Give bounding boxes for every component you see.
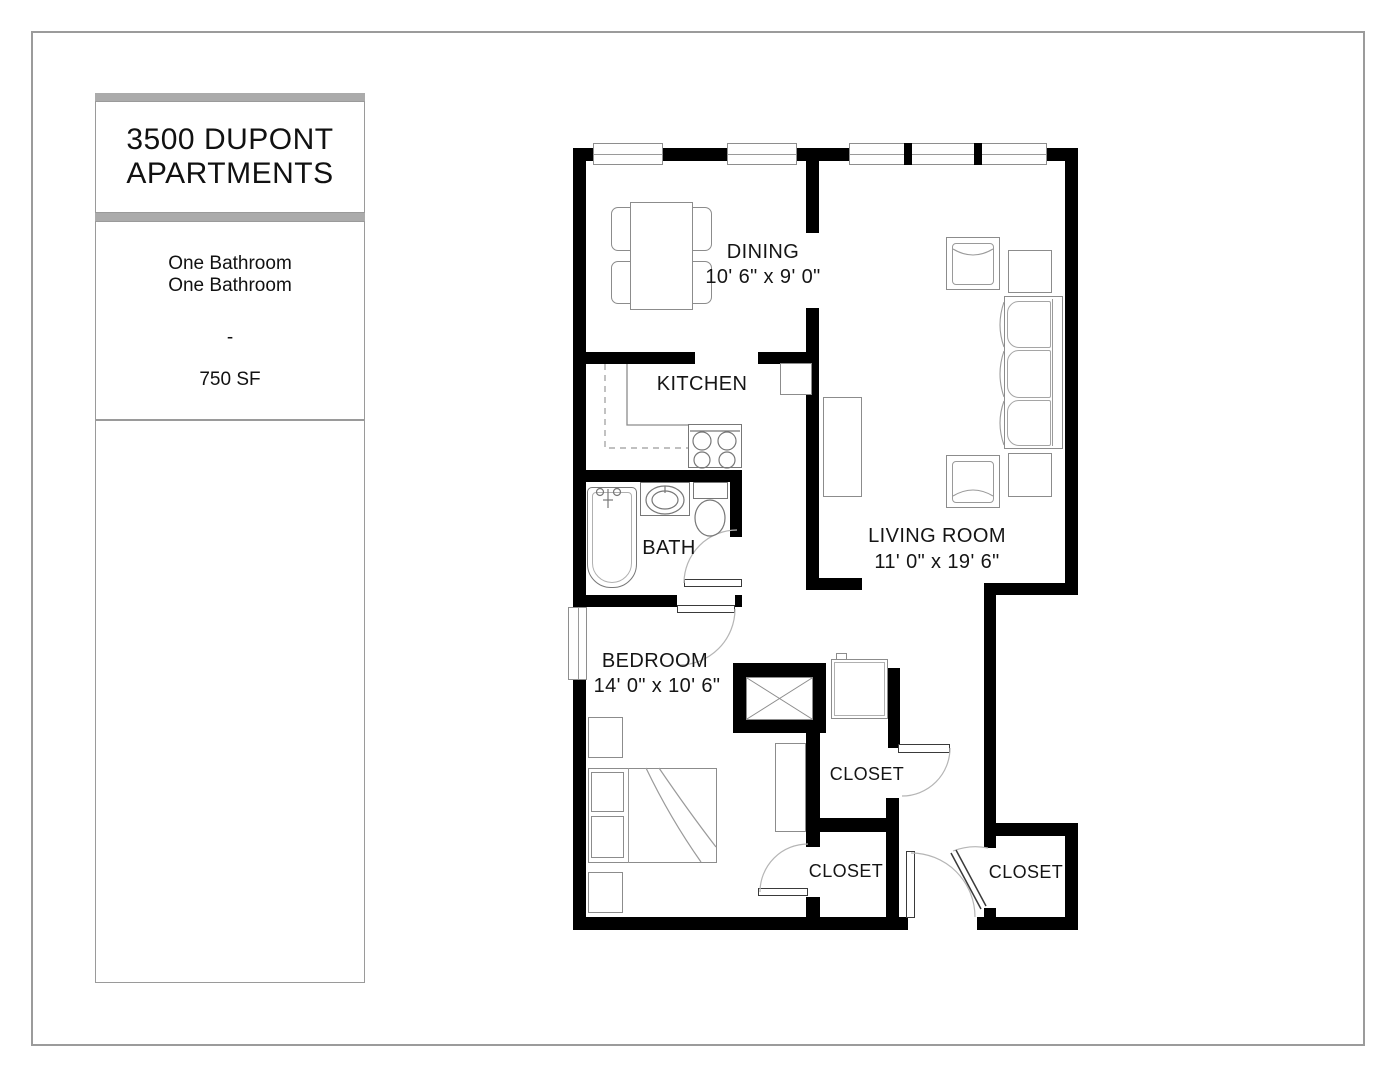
wall-segment	[1065, 161, 1078, 595]
room-label-bedroom: BEDROOM	[602, 650, 708, 672]
panel-divider-bar-top	[95, 93, 365, 101]
window-mullion	[904, 143, 912, 165]
dining-table	[630, 202, 693, 310]
room-label-dining: DINING	[727, 241, 799, 263]
console-table	[823, 397, 862, 497]
room-label-bath: BATH	[642, 537, 695, 559]
unit-info-line1: One Bathroom	[96, 253, 364, 275]
dining-chair	[611, 207, 631, 251]
room-label-closet-entry: CLOSET	[989, 863, 1063, 883]
building-name-line1: 3500 DUPONT	[126, 123, 333, 157]
wall-segment	[573, 595, 677, 607]
toilet-tank	[693, 482, 728, 499]
panel-empty-box	[95, 420, 365, 983]
floor-plan-page: 3500 DUPONT APARTMENTS One Bathroom One …	[0, 0, 1398, 1080]
armchair-cushion	[952, 461, 994, 503]
wall-segment	[886, 798, 899, 918]
dresser	[775, 743, 806, 832]
stove	[688, 424, 742, 468]
side-table	[1008, 453, 1052, 497]
wall-segment	[573, 917, 908, 930]
nightstand	[588, 872, 623, 913]
wall-segment	[735, 595, 742, 607]
refrigerator	[780, 363, 812, 395]
chase-shaft	[746, 677, 813, 720]
title-block: 3500 DUPONT APARTMENTS	[95, 101, 365, 213]
room-dims-dining: 10' 6" x 9' 0"	[705, 266, 820, 288]
wall-segment	[984, 595, 996, 835]
wall-segment	[586, 470, 742, 482]
wall-segment	[806, 148, 819, 233]
water-heater-vent	[836, 653, 847, 660]
wall-segment	[797, 148, 849, 161]
door-leaf-bath	[684, 579, 742, 587]
dining-chair	[611, 261, 631, 304]
window-mullion	[974, 143, 982, 165]
room-label-closet-middle: CLOSET	[809, 862, 883, 882]
building-name-line2: APARTMENTS	[126, 157, 333, 191]
wall-segment	[573, 161, 586, 607]
window	[727, 143, 797, 165]
bath-sink-cabinet	[640, 482, 690, 516]
window	[593, 143, 663, 165]
wall-segment	[984, 823, 1078, 836]
wall-segment	[1065, 836, 1078, 917]
window	[568, 607, 587, 680]
wall-segment	[806, 308, 819, 578]
wall-segment	[730, 482, 742, 537]
wall-segment	[806, 818, 898, 832]
wall-segment	[1047, 148, 1078, 161]
wall-segment	[586, 352, 695, 364]
wall-segment	[984, 836, 996, 848]
room-dims-living: 11' 0" x 19' 6"	[874, 551, 999, 573]
armchair-cushion	[952, 243, 994, 285]
dining-chair	[692, 207, 712, 251]
wall-segment	[573, 148, 595, 161]
unit-info-block: One Bathroom One Bathroom - 750 SF	[95, 221, 365, 420]
nightstand	[588, 717, 623, 758]
room-label-living: LIVING ROOM	[868, 525, 1006, 547]
door-leaf-closet-top	[898, 744, 950, 753]
water-heater-inner	[834, 662, 885, 716]
side-table	[1008, 250, 1052, 293]
wall-segment	[806, 578, 862, 590]
unit-area: 750 SF	[96, 369, 364, 391]
door-leaf-closet-middle	[758, 888, 808, 896]
door-leaf-bedroom	[677, 605, 735, 613]
sofa-cushion	[1007, 350, 1051, 398]
pillow	[591, 772, 624, 812]
wall-segment	[984, 583, 1078, 595]
pillow	[591, 816, 624, 858]
bathtub-inner	[592, 492, 632, 583]
wall-segment	[984, 908, 996, 917]
unit-info-separator: -	[96, 327, 364, 349]
wall-segment	[663, 148, 727, 161]
wall-segment	[806, 897, 820, 917]
wall-segment	[888, 668, 900, 748]
sofa-cushion	[1007, 400, 1051, 446]
sofa-cushion	[1007, 301, 1051, 348]
room-dims-bedroom: 14' 0" x 10' 6"	[594, 675, 721, 697]
panel-divider-bar-bottom	[95, 213, 365, 221]
bed-sheet-line	[628, 768, 629, 863]
room-label-closet-top: CLOSET	[830, 765, 904, 785]
wall-segment	[977, 917, 1078, 930]
sofa-back-line	[1052, 299, 1053, 446]
door-leaf-entry	[906, 851, 915, 918]
wall-segment	[573, 680, 586, 930]
window	[849, 143, 1047, 165]
unit-info-line2: One Bathroom	[96, 275, 364, 297]
room-label-kitchen: KITCHEN	[657, 373, 748, 395]
